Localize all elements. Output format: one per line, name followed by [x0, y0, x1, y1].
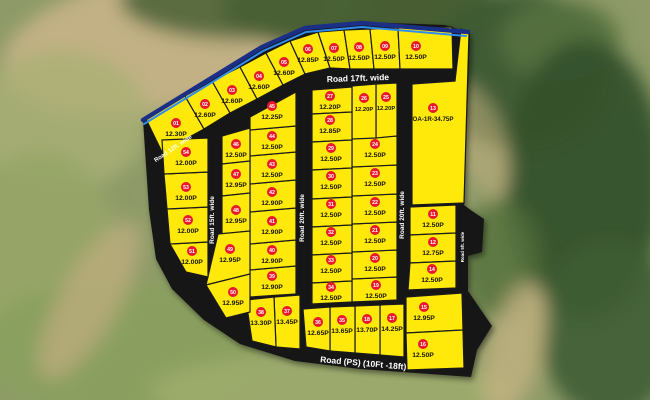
plot-22: 2212.50P — [352, 194, 397, 224]
plot-31: 3112.50P — [312, 197, 352, 227]
plot-11-size-label: 12.50P — [422, 222, 444, 229]
plot-19-number: 19 — [373, 283, 379, 289]
plot-11: 1112.50P — [410, 205, 456, 235]
plot-52: 5212.00P — [167, 207, 208, 244]
plot-22-size-label: 12.50P — [364, 210, 386, 217]
plot-41: 4112.90P — [250, 208, 296, 244]
plot-44-number: 44 — [269, 134, 275, 140]
plot-36-size-label: 12.65P — [307, 330, 329, 337]
plot-53: 5312.00P — [164, 172, 208, 209]
plot-05-size-label: 12.60P — [273, 70, 295, 77]
plot-09: 0912.50P — [370, 28, 400, 69]
plot-46-size-label: 12.50P — [225, 152, 247, 159]
plot-46-number: 46 — [233, 142, 239, 148]
plot-18-size-label: 13.70P — [356, 327, 378, 334]
plot-48-size-label: 12.95P — [225, 218, 247, 225]
plot-25-size-label: 12.20P — [377, 106, 396, 112]
plot-44-size-label: 12.50P — [261, 144, 283, 151]
plot-15-number: 15 — [421, 305, 427, 311]
plot-48: 4812.95P — [222, 193, 250, 234]
plot-19-size-label: 12.50P — [365, 293, 387, 300]
plot-29-size-label: 12.50P — [320, 156, 342, 163]
plot-36-number: 36 — [315, 320, 321, 326]
plot-30-size-label: 12.50P — [320, 184, 342, 191]
plot-52-size-label: 12.00P — [177, 228, 199, 235]
plot-08-size-label: 12.50P — [348, 55, 370, 62]
plot-06-number: 06 — [305, 47, 311, 53]
plot-36: 3612.65P — [303, 307, 330, 351]
plot-18-number: 18 — [364, 317, 370, 323]
plot-40: 4012.90P — [250, 240, 296, 270]
plot-43-number: 43 — [269, 162, 275, 168]
plot-08: 0812.50P — [344, 29, 374, 69]
plot-34-size-label: 12.50P — [320, 295, 342, 302]
plot-39-area — [250, 266, 296, 297]
plot-40-area — [250, 240, 296, 270]
plot-32: 3212.50P — [312, 225, 352, 255]
plot-02-number: 02 — [202, 102, 208, 108]
plot-35-size-label: 13.65P — [331, 328, 353, 335]
plot-27-number: 27 — [327, 94, 333, 100]
plot-28-size-label: 12.85P — [319, 128, 341, 135]
plot-50-size-label: 12.95P — [222, 300, 244, 307]
plot-27-size-label: 12.20P — [319, 104, 341, 111]
plot-24-size-label: 12.50P — [364, 152, 386, 159]
plot-38-number: 38 — [258, 310, 264, 316]
plot-25-number: 25 — [383, 95, 389, 101]
plot-47: 4712.95P — [222, 161, 250, 196]
plot-38-size-label: 13.30P — [250, 320, 272, 327]
plot-39-size-label: 12.90P — [261, 284, 283, 291]
plot-07-number: 07 — [331, 46, 337, 52]
plot-16-area — [406, 330, 464, 370]
plot-33-number: 33 — [328, 258, 334, 264]
plot-37-size-label: 13.45P — [276, 319, 298, 326]
plot-52-number: 52 — [185, 218, 191, 224]
plot-41-number: 41 — [269, 219, 275, 225]
plot-32-number: 32 — [328, 230, 334, 236]
plot-map: 0112.30P0212.60P0312.60P0412.60P0512.60P… — [0, 0, 650, 400]
plot-43: 4312.50P — [250, 152, 296, 184]
plot-28: 2812.85P — [312, 112, 352, 142]
plot-44: 4412.50P — [250, 126, 296, 156]
plot-30: 3012.50P — [312, 168, 352, 199]
plot-24: 2412.50P — [352, 136, 397, 167]
plot-53-number: 53 — [183, 185, 189, 191]
plot-53-size-label: 12.00P — [175, 195, 197, 202]
plot-23-number: 23 — [372, 171, 378, 177]
plot-30-number: 30 — [328, 174, 334, 180]
plot-13-number: 13 — [430, 106, 436, 112]
plot-07-size-label: 12.50P — [323, 56, 345, 63]
plot-16: 1612.50P — [406, 330, 464, 370]
plot-43-size-label: 12.50P — [261, 172, 283, 179]
plot-20-number: 20 — [372, 256, 378, 262]
plot-20: 2012.50P — [352, 250, 397, 279]
plot-01-number: 01 — [173, 121, 179, 127]
plot-40-number: 40 — [269, 248, 275, 254]
plot-22-number: 22 — [372, 200, 378, 206]
plot-12: 1212.75P — [410, 233, 456, 263]
plot-23: 2312.50P — [352, 165, 397, 196]
plot-10-number: 10 — [413, 44, 419, 50]
plot-29-number: 29 — [328, 146, 334, 152]
plot-54-size-label: 12.00P — [175, 160, 197, 167]
road-20ft-left-label: Road 20ft. wide — [299, 194, 306, 242]
plot-11-number: 11 — [430, 212, 436, 218]
plot-23-size-label: 12.50P — [364, 181, 386, 188]
plot-04-size-label: 12.60P — [248, 84, 270, 91]
plot-45-size-label: 12.25P — [261, 114, 283, 121]
plot-09-size-label: 12.50P — [374, 54, 396, 61]
plot-37: 3713.45P — [274, 295, 300, 349]
plot-05-number: 05 — [281, 60, 287, 66]
road-20ft-right-label: Road 20ft. wide — [399, 191, 406, 239]
plot-14-number: 14 — [429, 267, 435, 273]
plot-47-size-label: 12.95P — [225, 182, 247, 189]
plot-26-number: 26 — [361, 96, 367, 102]
plot-51-size-label: 12.00P — [181, 259, 203, 266]
plot-14-size-label: 12.50P — [421, 277, 443, 284]
plot-04-number: 04 — [256, 74, 262, 80]
plot-12-size-label: 12.75P — [422, 250, 444, 257]
plot-51-number: 51 — [189, 249, 195, 255]
plot-28-number: 28 — [327, 118, 333, 124]
plot-26-size-label: 12.20P — [355, 107, 374, 113]
plot-42-size-label: 12.90P — [261, 200, 283, 207]
plot-01-size-label: 12.30P — [165, 131, 187, 138]
plot-49-number: 49 — [227, 247, 233, 253]
plot-12-number: 12 — [430, 240, 436, 246]
plot-21-number: 21 — [372, 228, 378, 234]
plot-19: 1912.50P — [352, 277, 397, 302]
plot-15-size-label: 12.95P — [413, 315, 435, 322]
plot-31-number: 31 — [328, 202, 334, 208]
plot-54-number: 54 — [183, 150, 189, 156]
plot-45-number: 45 — [269, 104, 275, 110]
plot-14: 1412.50P — [408, 261, 456, 290]
road-5ft-label: Road 5ft. wide — [460, 231, 465, 262]
plot-24-number: 24 — [372, 142, 378, 148]
plot-17-number: 17 — [389, 316, 395, 322]
plot-33-size-label: 12.50P — [320, 268, 342, 275]
plot-42-number: 42 — [269, 190, 275, 196]
plot-21-size-label: 12.50P — [364, 238, 386, 245]
plot-42: 4212.90P — [250, 180, 296, 212]
plot-29: 2912.50P — [312, 140, 352, 170]
plot-03-size-label: 12.60P — [221, 98, 243, 105]
plot-02-size-label: 12.60P — [194, 112, 216, 119]
plot-35-number: 35 — [339, 318, 345, 324]
plot-37-number: 37 — [284, 309, 290, 315]
plot-20-size-label: 12.50P — [364, 266, 386, 273]
plot-44-area — [250, 126, 296, 156]
plot-31-size-label: 12.50P — [320, 212, 342, 219]
plot-15-area — [406, 293, 463, 333]
plot-50-number: 50 — [230, 290, 236, 296]
plot-16-number: 16 — [420, 342, 426, 348]
plot-21: 2112.50P — [352, 222, 397, 252]
plot-13-size-label: OA-1R-34.75P — [413, 116, 454, 123]
plot-39-number: 39 — [269, 274, 275, 280]
plot-34-number: 34 — [328, 285, 334, 291]
plot-27: 2712.20P — [312, 87, 352, 114]
plot-34: 3412.50P — [312, 281, 352, 304]
plot-32-size-label: 12.50P — [320, 240, 342, 247]
plot-41-size-label: 12.90P — [261, 229, 283, 236]
plot-39: 3912.90P — [250, 266, 296, 297]
plot-48-number: 48 — [233, 208, 239, 214]
plot-52-area — [167, 207, 208, 244]
plot-26: 2612.20P — [352, 84, 376, 139]
plot-15: 1512.95P — [406, 293, 463, 333]
plot-06-size-label: 12.85P — [297, 57, 319, 64]
plot-17: 1714.25P — [380, 304, 404, 357]
plot-40-size-label: 12.90P — [261, 258, 283, 265]
plot-03-number: 03 — [229, 88, 235, 94]
plot-09-number: 09 — [382, 44, 388, 50]
plot-35: 3513.65P — [330, 306, 355, 353]
land-plot-layout-map: 0112.30P0212.60P0312.60P0412.60P0512.60P… — [0, 0, 650, 400]
plot-08-number: 08 — [356, 45, 362, 51]
plot-10-size-label: 12.50P — [405, 54, 427, 61]
road-15ft-label: Road 15ft. wide — [209, 196, 216, 244]
plot-16-size-label: 12.50P — [412, 352, 434, 359]
plot-17-size-label: 14.25P — [381, 326, 403, 333]
plot-49-size-label: 12.95P — [219, 257, 241, 264]
plot-41-area — [250, 208, 296, 244]
plot-36-area — [303, 307, 330, 351]
plot-25: 2512.20P — [376, 83, 397, 138]
plot-33: 3312.50P — [312, 253, 352, 283]
plot-18: 1813.70P — [355, 305, 380, 355]
plot-47-number: 47 — [233, 172, 239, 178]
